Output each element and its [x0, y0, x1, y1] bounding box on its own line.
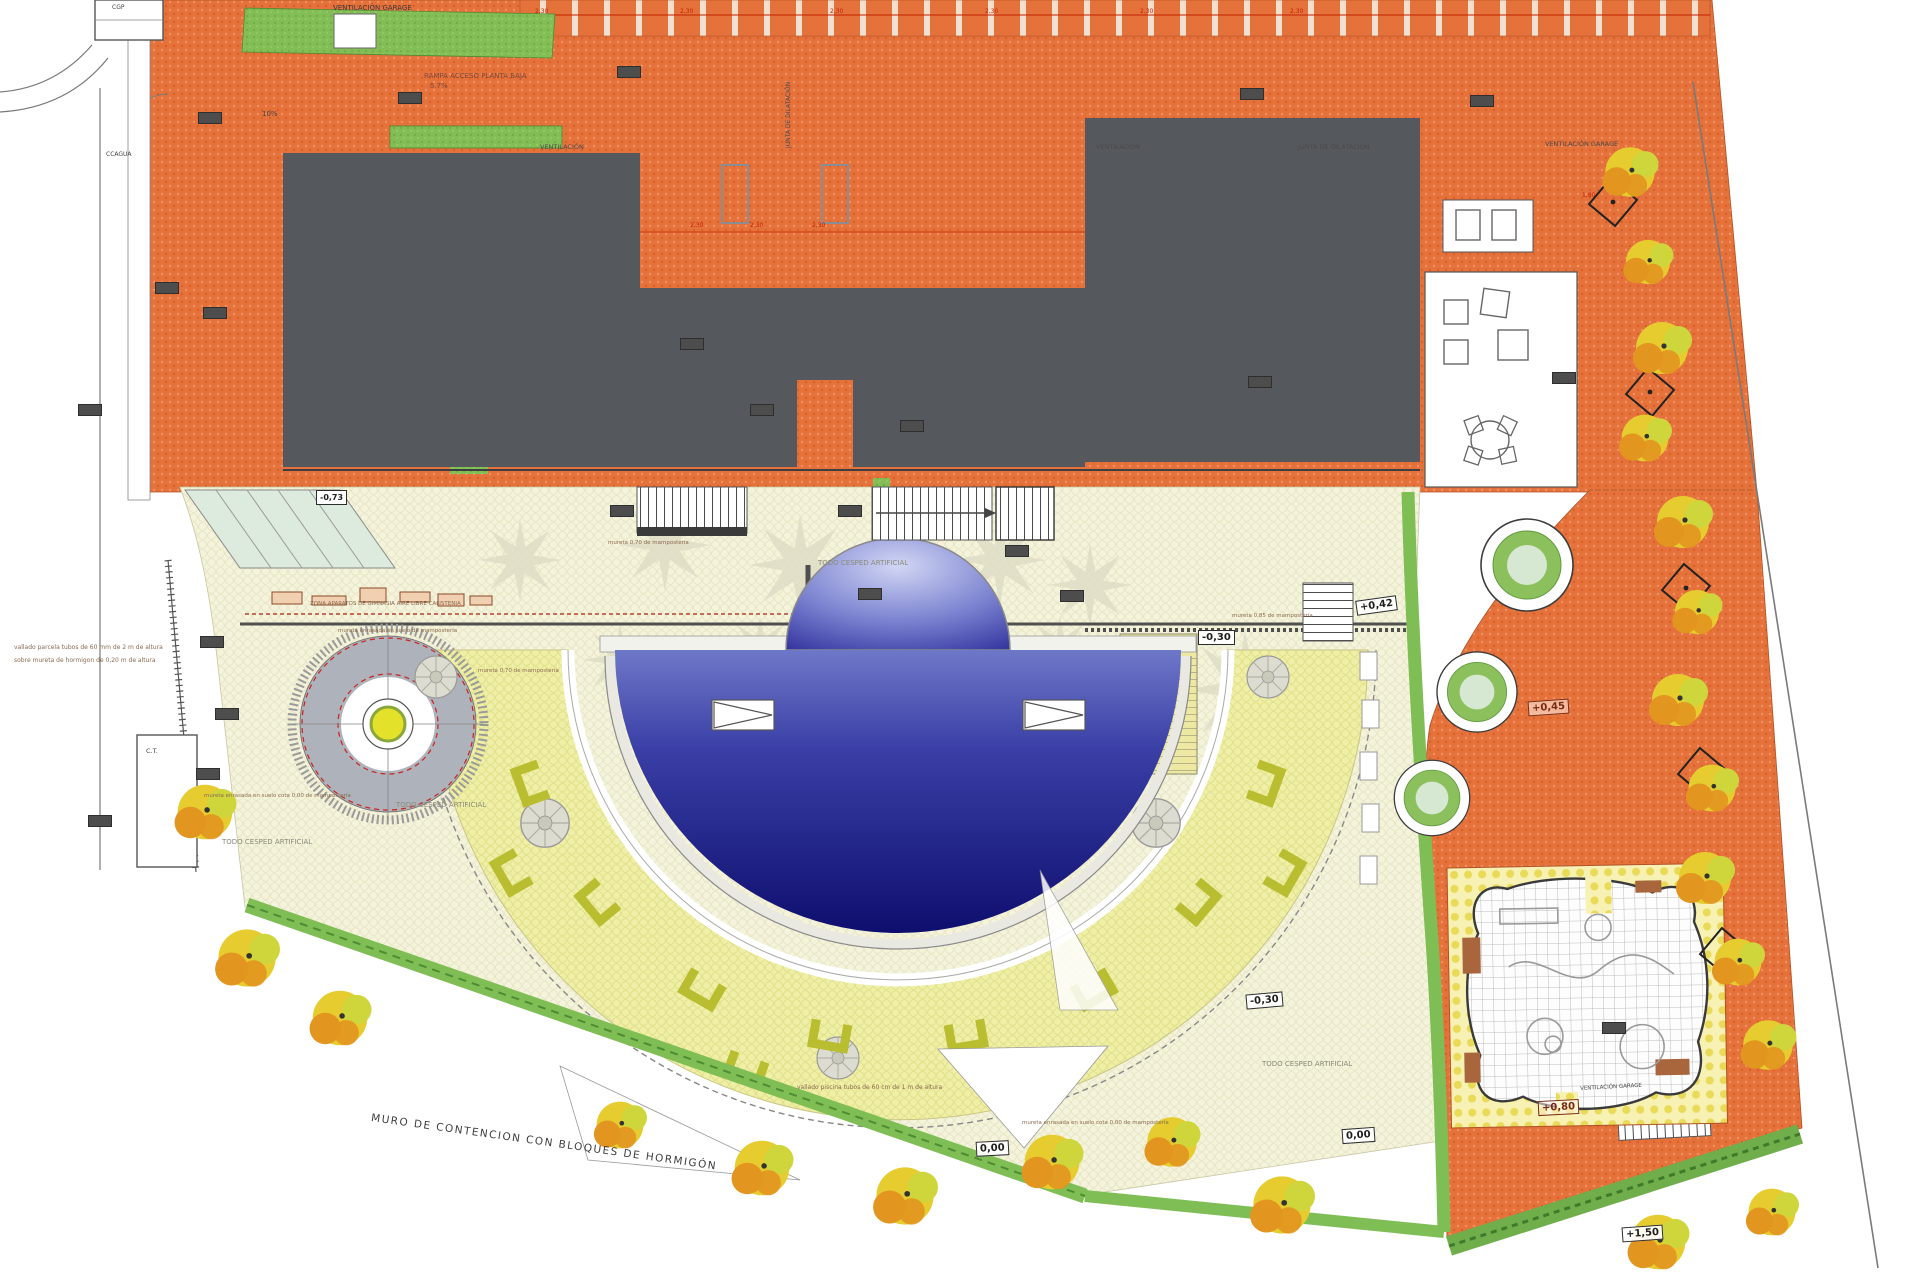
- label-cesped-2: TODO CESPED ARTIFICIAL: [396, 801, 486, 809]
- dim-tag: [750, 404, 774, 416]
- label-ventilacion-garage-top: VENTILACIÓN GARAGE: [333, 4, 412, 12]
- label-rampa-slope: 5.7%: [430, 82, 448, 90]
- dim-tag: [610, 505, 634, 517]
- label-ramp-10: 10%: [262, 110, 278, 118]
- dim-tag: [1060, 590, 1084, 602]
- dim-tag: [1005, 545, 1029, 557]
- dim-230-c2: 2,30: [750, 222, 763, 229]
- dim-tag: [1470, 95, 1494, 107]
- circular-plaza: [292, 628, 484, 820]
- level-p080: +0,80: [1538, 1099, 1580, 1116]
- dim-230-c3: 2,30: [812, 222, 825, 229]
- dim-tag: [1248, 376, 1272, 388]
- label-vallado-parcela-1: vallado parcela tubos de 60 mm de 2 m de…: [14, 645, 163, 652]
- dim-tag: [858, 588, 882, 600]
- dim-230-2: 2,30: [680, 8, 693, 15]
- label-cgp: CGP: [112, 5, 124, 12]
- building-footprint: [283, 118, 1420, 487]
- dim-tag: [398, 92, 422, 104]
- dim-tag: [1602, 1022, 1626, 1034]
- dim-tag: [196, 768, 220, 780]
- pergola-band: [520, 0, 1710, 36]
- level-neg030-b: -0,30: [1245, 991, 1283, 1009]
- label-rampa: RAMPA ACCESO PLANTA BAJA: [424, 72, 527, 80]
- dim-tag: [838, 505, 862, 517]
- dim-tag: [155, 282, 179, 294]
- dim-230-1: 2,30: [535, 8, 548, 15]
- dim-230-6: 2,30: [1290, 8, 1303, 15]
- label-ventilacion-a: VENTILACIÓN: [540, 144, 584, 151]
- label-mureta-cota-a: mureta enrasada en suelo cota 0,00 de ma…: [204, 793, 351, 799]
- dim-180: 1,80: [1582, 192, 1595, 199]
- label-mureta-070b: mureta 0,70 de mampostería: [478, 668, 559, 674]
- dim-tag: [203, 307, 227, 319]
- dim-tag: [215, 708, 239, 720]
- label-cesped-4: TODO CESPED ARTIFICIAL: [1262, 1060, 1352, 1068]
- label-mureta-cota-b: mureta enrasada en suelo cota 0,00 de ma…: [1022, 1120, 1169, 1126]
- dim-230-5: 2,30: [1140, 8, 1153, 15]
- dim-tag: [1552, 372, 1576, 384]
- label-vallado-parcela-2: sobre mureta de hormigon de 0,20 m de al…: [14, 658, 156, 665]
- dim-230-3: 2,30: [830, 8, 843, 15]
- dim-tag: [900, 420, 924, 432]
- label-cesped-3: TODO CESPED ARTIFICIAL: [222, 838, 312, 846]
- label-mureta-085: mureta 0,85 de mampostería: [1232, 613, 1313, 619]
- level-zero-b: 0,00: [1342, 1127, 1376, 1144]
- dim-tag: [78, 404, 102, 416]
- dim-tag: [617, 66, 641, 78]
- level-p150: +1,50: [1622, 1225, 1664, 1243]
- level-neg030-a: -0,30: [1198, 630, 1235, 645]
- label-mureta-070a: mureta 0,70 de mampostería: [608, 540, 689, 546]
- dim-tag: [1240, 88, 1264, 100]
- level-zero-a: 0,00: [976, 1140, 1009, 1157]
- label-vallado-piscina: vallado piscina tubos de 60 cm de 1 m de…: [797, 1085, 942, 1092]
- label-mureta-enrasada: mureta enrasada en suelo de mampostería: [338, 628, 457, 634]
- dim-tag: [680, 338, 704, 350]
- label-ventilacion-garage-right: VENTILACIÓN GARAGE: [1545, 141, 1618, 148]
- label-cesped-1: TODO CESPED ARTIFICIAL: [818, 559, 908, 567]
- label-junta-vertical: JUNTA DE DILATACIÓN: [786, 82, 793, 148]
- level-neg073: -0,73: [316, 490, 347, 505]
- level-p045: +0,45: [1528, 699, 1570, 717]
- dim-tag: [200, 636, 224, 648]
- dim-tag: [88, 815, 112, 827]
- dim-230-c1: 2,30: [690, 222, 703, 229]
- label-ccagua: CCAGUA: [106, 152, 132, 159]
- label-ventilacion-b: VENTILACIÓN: [1096, 144, 1140, 151]
- label-junta-horizontal: JUNTA DE DILATACIÓN: [1298, 144, 1370, 151]
- label-zona-aparatos: ZONA APARATOS DE GIMNASIA AIRE LIBRE CAL…: [310, 601, 461, 607]
- dim-tag: [198, 112, 222, 124]
- dim-230-4: 2,30: [985, 8, 998, 15]
- site-plan: VENTILACIÓN GARAGE RAMPA ACCESO PLANTA B…: [0, 0, 1920, 1280]
- label-ct: C.T.: [146, 748, 158, 755]
